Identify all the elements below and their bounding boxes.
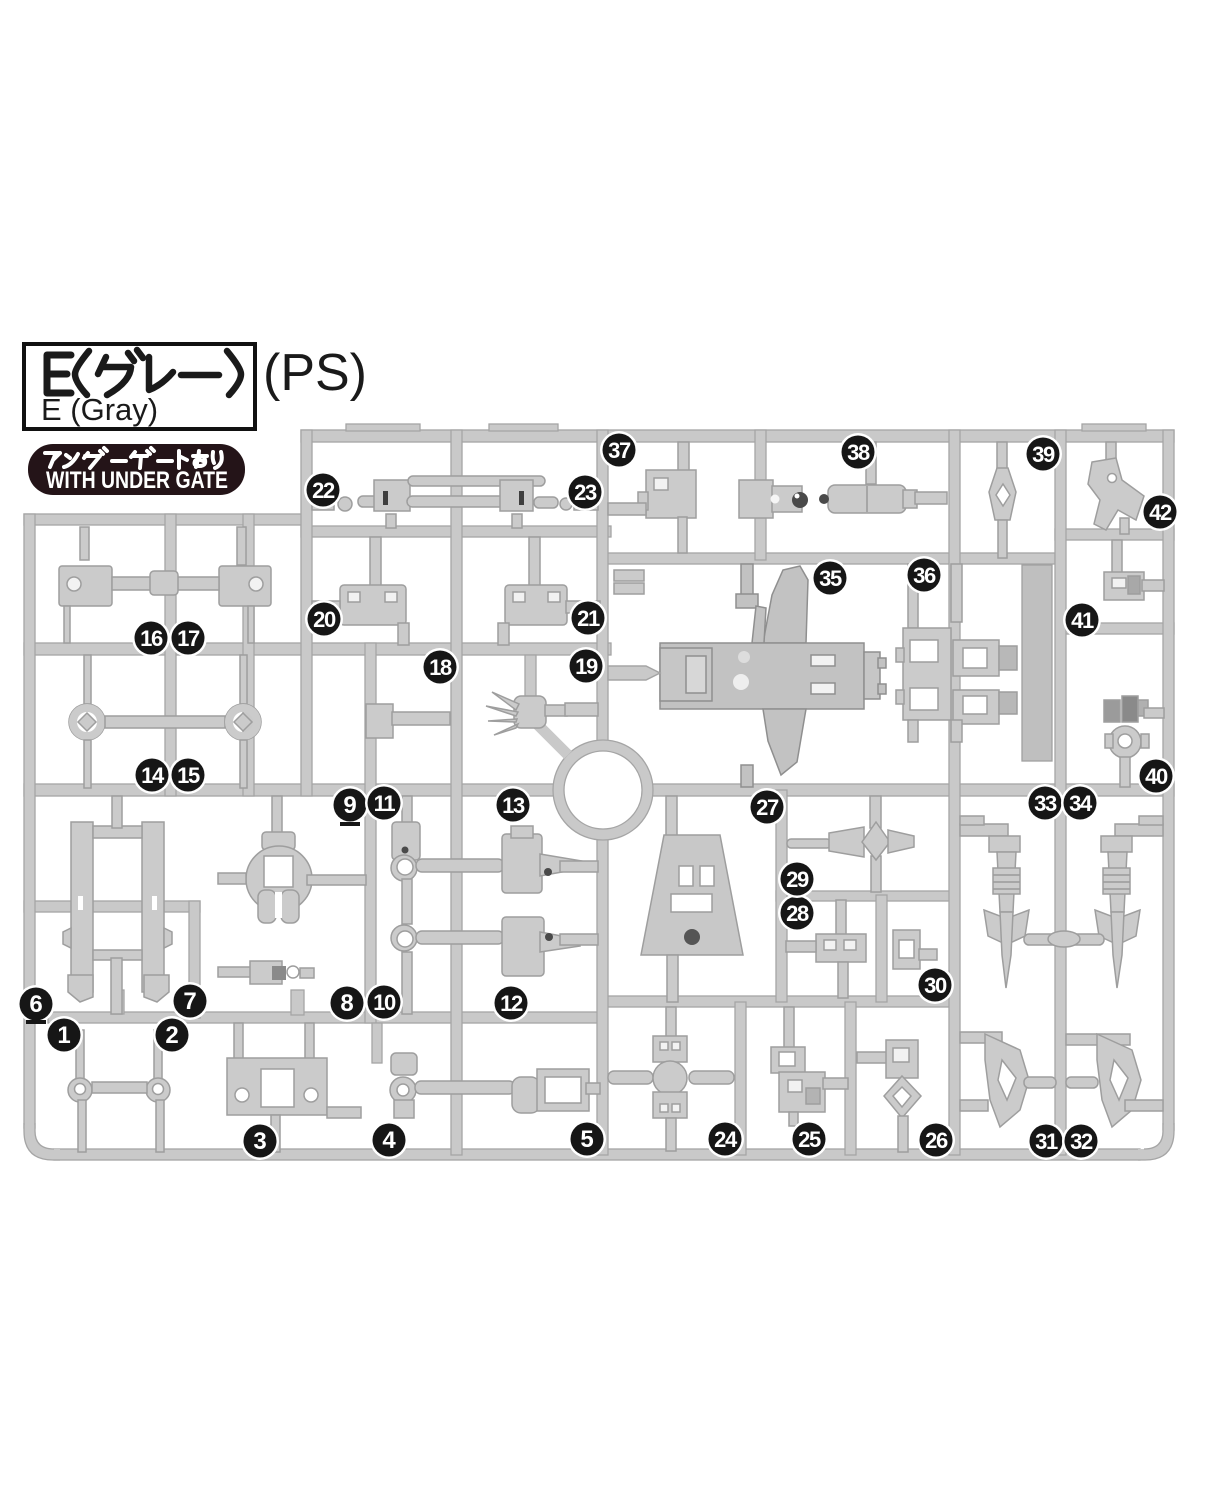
svg-text:6: 6 [29, 991, 42, 1018]
svg-text:35: 35 [819, 566, 842, 591]
svg-text:31: 31 [1035, 1129, 1058, 1154]
svg-text:33: 33 [1034, 791, 1057, 816]
svg-text:29: 29 [786, 867, 809, 892]
svg-text:13: 13 [502, 793, 525, 818]
svg-text:20: 20 [313, 607, 336, 632]
svg-text:34: 34 [1069, 791, 1093, 816]
svg-text:WITH UNDER GATE: WITH UNDER GATE [46, 467, 228, 494]
svg-text:(PS): (PS) [263, 344, 367, 402]
svg-text:8: 8 [340, 990, 353, 1017]
svg-text:5: 5 [580, 1126, 593, 1153]
svg-text:4: 4 [382, 1127, 396, 1154]
svg-text:18: 18 [429, 655, 452, 680]
svg-text:41: 41 [1071, 608, 1094, 633]
svg-text:30: 30 [924, 973, 947, 998]
svg-text:14: 14 [141, 763, 165, 788]
svg-text:11: 11 [374, 791, 396, 816]
svg-text:21: 21 [577, 606, 600, 631]
svg-text:12: 12 [500, 991, 523, 1016]
svg-text:3: 3 [253, 1128, 266, 1155]
svg-text:22: 22 [312, 478, 335, 503]
svg-text:7: 7 [183, 988, 196, 1015]
svg-text:23: 23 [574, 480, 597, 505]
svg-text:39: 39 [1032, 442, 1055, 467]
svg-text:36: 36 [913, 563, 936, 588]
svg-text:27: 27 [756, 795, 779, 820]
svg-text:24: 24 [714, 1127, 738, 1152]
svg-text:26: 26 [925, 1128, 948, 1153]
svg-text:1: 1 [57, 1022, 70, 1049]
svg-text:40: 40 [1145, 764, 1168, 789]
svg-text:19: 19 [575, 654, 598, 679]
svg-text:17: 17 [177, 626, 200, 651]
svg-text:16: 16 [140, 626, 163, 651]
svg-text:E (Gray): E (Gray) [41, 392, 158, 427]
svg-text:15: 15 [177, 763, 200, 788]
svg-text:25: 25 [798, 1127, 821, 1152]
svg-text:2: 2 [165, 1022, 178, 1049]
svg-text:38: 38 [847, 440, 870, 465]
svg-text:37: 37 [608, 438, 631, 463]
svg-text:10: 10 [373, 990, 396, 1015]
svg-text:28: 28 [786, 901, 809, 926]
svg-text:42: 42 [1149, 500, 1172, 525]
svg-text:9: 9 [343, 792, 356, 819]
svg-text:32: 32 [1070, 1129, 1093, 1154]
